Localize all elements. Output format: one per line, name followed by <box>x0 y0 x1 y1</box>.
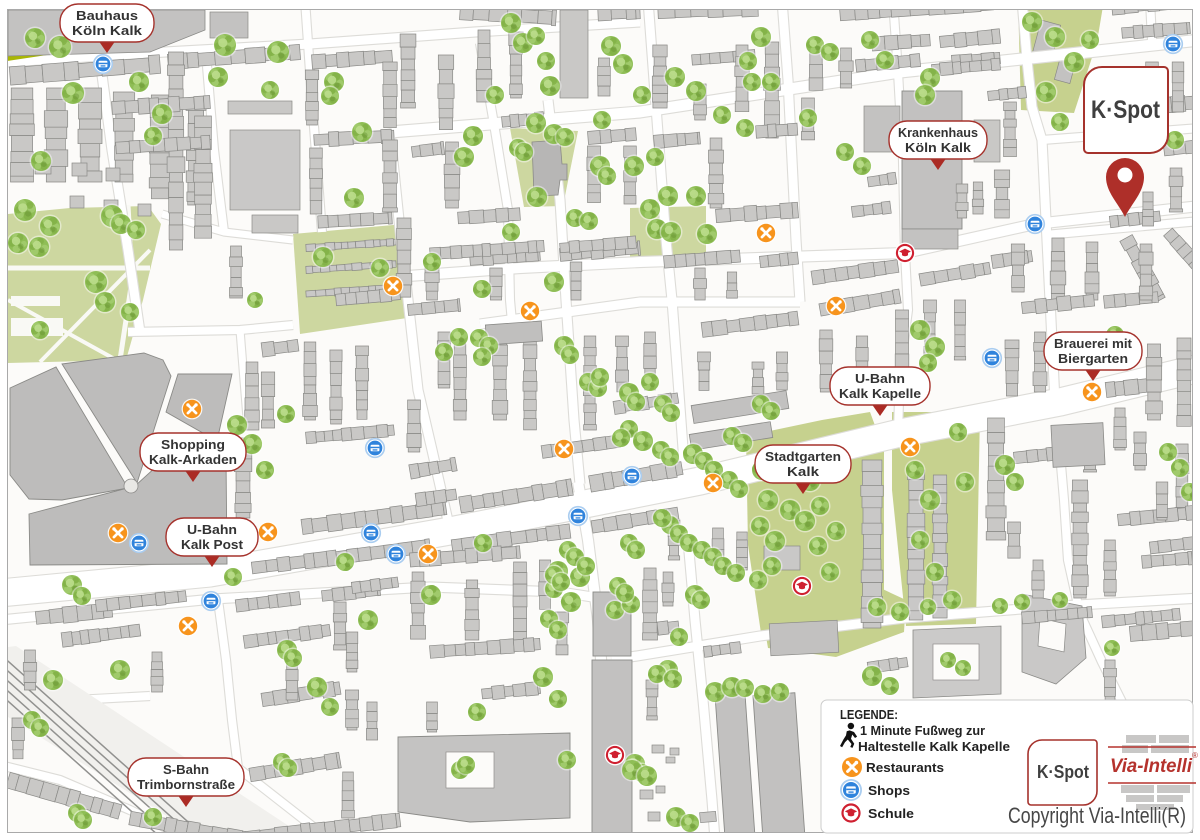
svg-text:K·Spot: K·Spot <box>1037 762 1089 782</box>
svg-text:Shopping: Shopping <box>161 437 225 452</box>
svg-text:U-Bahn: U-Bahn <box>855 371 905 386</box>
svg-text:Haltestelle Kalk Kapelle: Haltestelle Kalk Kapelle <box>858 740 1010 754</box>
svg-text:Brauerei mit: Brauerei mit <box>1054 336 1133 351</box>
svg-text:Schule: Schule <box>868 807 914 821</box>
svg-text:Copyright Via-Intelli(R): Copyright Via-Intelli(R) <box>1008 803 1186 828</box>
svg-text:®: ® <box>1192 751 1198 760</box>
svg-text:Köln Kalk: Köln Kalk <box>905 140 972 155</box>
svg-text:K·Spot: K·Spot <box>1091 96 1161 124</box>
svg-text:Restaurants: Restaurants <box>866 761 944 775</box>
svg-text:1 Minute Fußweg zur: 1 Minute Fußweg zur <box>860 724 985 738</box>
svg-text:Trimbornstraße: Trimbornstraße <box>137 777 235 792</box>
svg-text:Via-Intelli: Via-Intelli <box>1110 756 1193 777</box>
svg-text:U-Bahn: U-Bahn <box>187 522 237 537</box>
svg-text:Kalk Kapelle: Kalk Kapelle <box>839 386 921 401</box>
svg-text:S-Bahn: S-Bahn <box>163 762 209 777</box>
svg-text:Shops: Shops <box>868 784 910 798</box>
svg-text:Bauhaus: Bauhaus <box>76 8 138 23</box>
svg-text:Kalk-Arkaden: Kalk-Arkaden <box>149 452 237 467</box>
svg-text:Kalk: Kalk <box>787 464 820 479</box>
svg-text:Krankenhaus: Krankenhaus <box>898 125 978 140</box>
svg-text:Kalk Post: Kalk Post <box>181 537 244 552</box>
svg-text:Köln Kalk: Köln Kalk <box>72 23 143 38</box>
svg-text:LEGENDE:: LEGENDE: <box>840 707 898 722</box>
svg-text:Stadtgarten: Stadtgarten <box>765 449 841 464</box>
svg-text:Biergarten: Biergarten <box>1058 351 1128 366</box>
